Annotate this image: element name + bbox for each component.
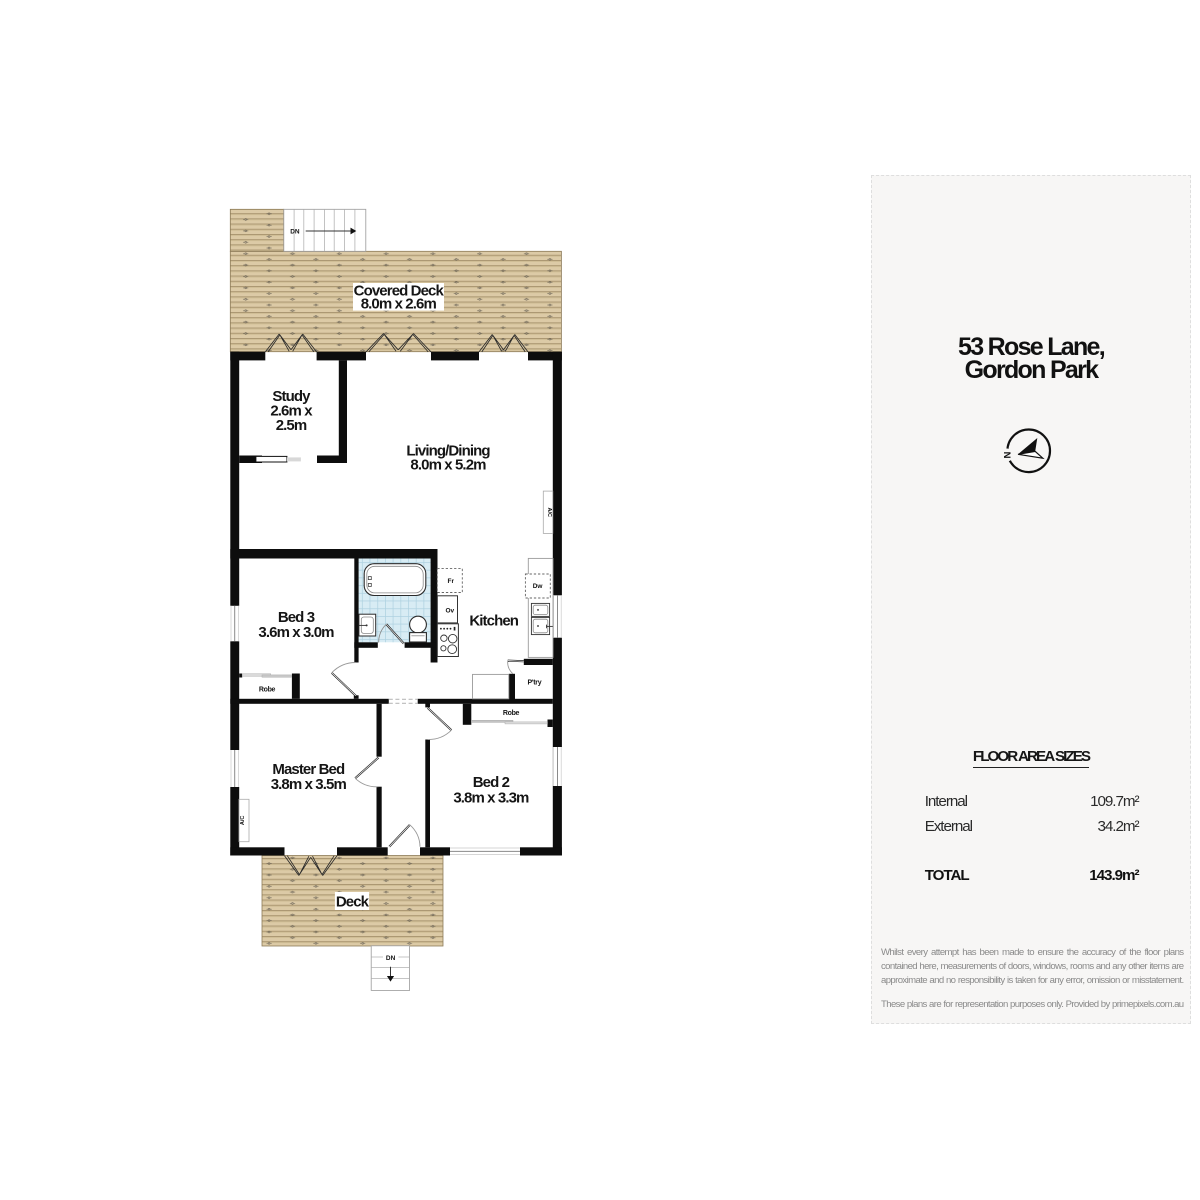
svg-text:Robe: Robe: [259, 686, 276, 693]
svg-text:A/C: A/C: [546, 508, 552, 518]
svg-text:DN: DN: [386, 955, 396, 962]
svg-text:N: N: [1002, 451, 1013, 458]
svg-text:Dw: Dw: [533, 583, 544, 590]
svg-text:P'try: P'try: [528, 680, 542, 687]
svg-text:Bed 2: Bed 2: [473, 774, 510, 791]
svg-text:Kitchen: Kitchen: [469, 613, 518, 630]
svg-text:3.8m x 3.5m: 3.8m x 3.5m: [271, 776, 347, 793]
svg-text:2.5m: 2.5m: [276, 417, 307, 434]
svg-text:Robe: Robe: [503, 710, 520, 717]
svg-text:8.0m x 2.6m: 8.0m x 2.6m: [361, 296, 437, 313]
svg-text:Ov: Ov: [445, 607, 454, 614]
svg-text:DN: DN: [290, 229, 300, 236]
svg-text:Fr: Fr: [448, 578, 455, 585]
svg-text:A/C: A/C: [240, 816, 246, 826]
svg-text:3.8m x 3.3m: 3.8m x 3.3m: [453, 790, 529, 807]
svg-text:3.6m x 3.0m: 3.6m x 3.0m: [258, 624, 334, 641]
svg-text:Deck: Deck: [336, 893, 370, 910]
svg-text:8.0m x 5.2m: 8.0m x 5.2m: [410, 457, 486, 474]
